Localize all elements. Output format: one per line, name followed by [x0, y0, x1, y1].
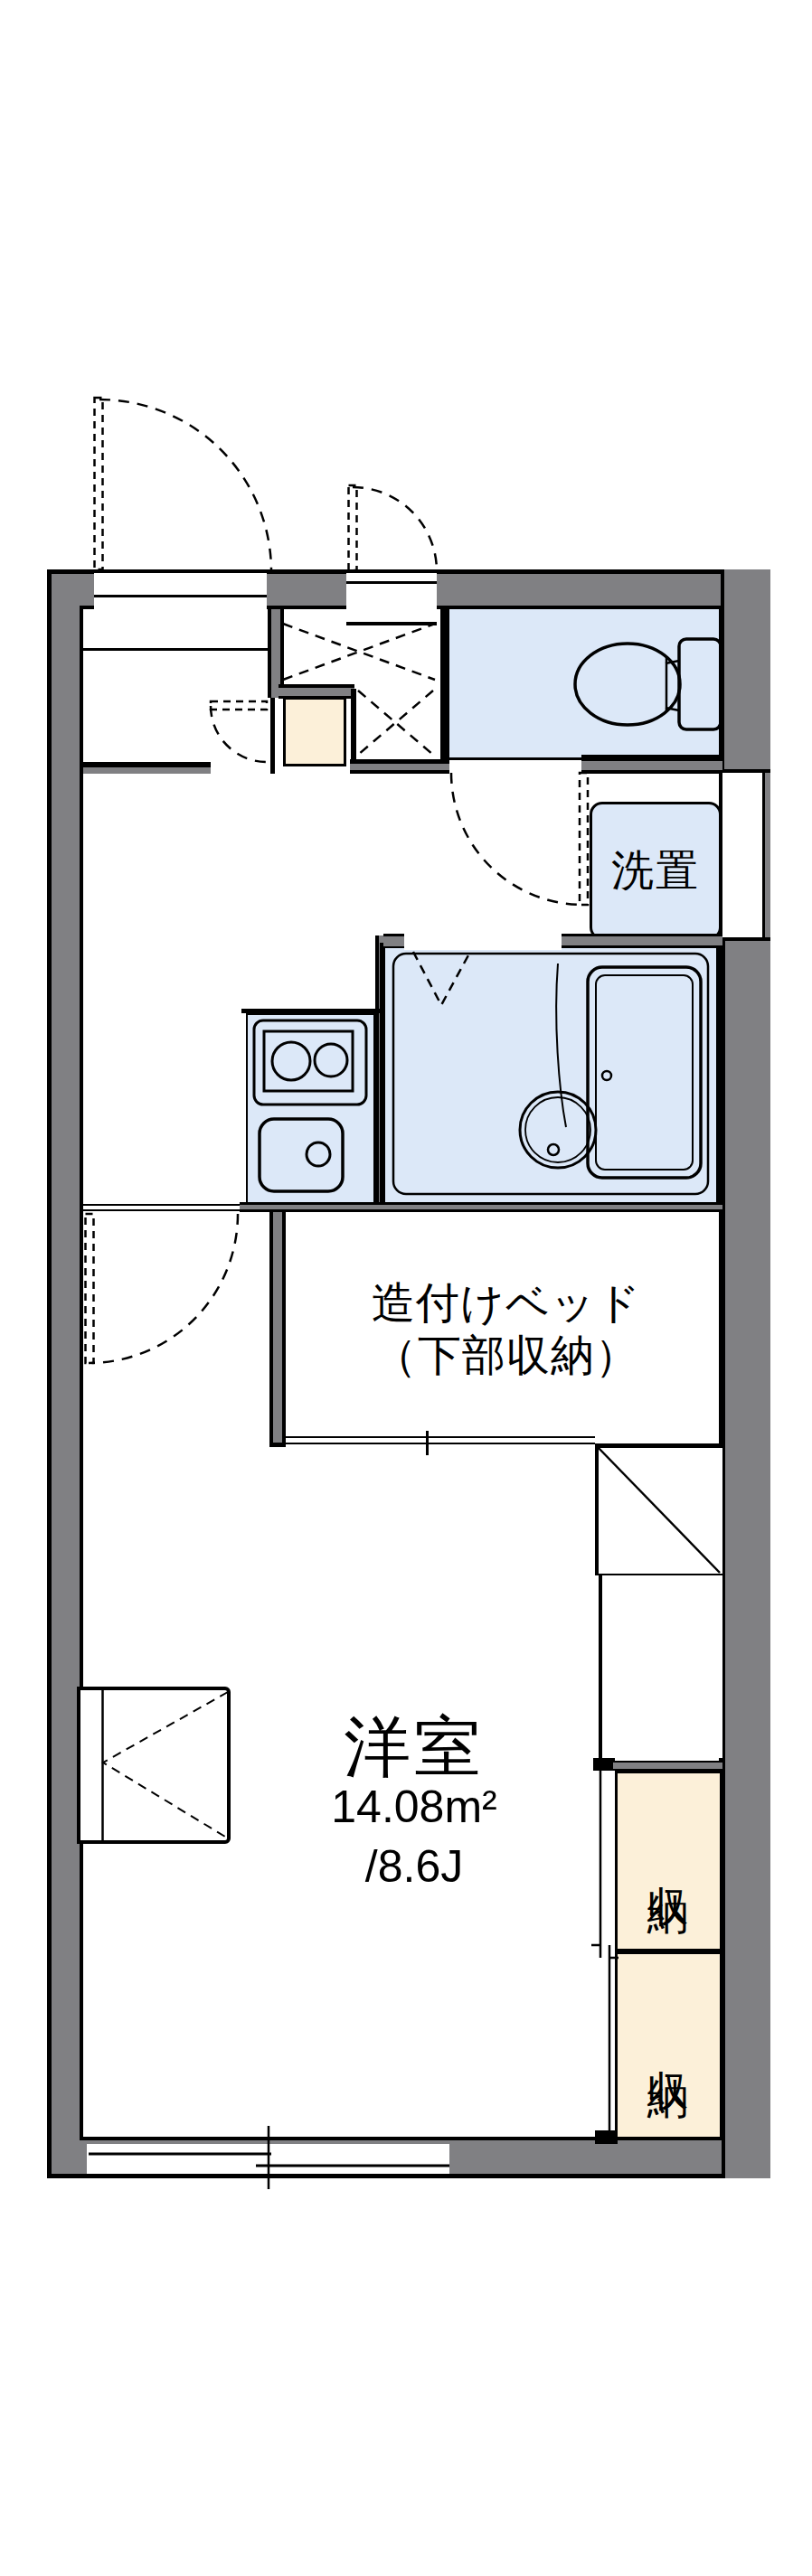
built-in-bed-label: 造付けベッド （下部収納）	[298, 1277, 714, 1382]
bay-window	[77, 1687, 231, 1844]
wall-right-toilet	[721, 569, 770, 773]
storage-lower: 収納	[615, 1951, 722, 2139]
wall-storage-notch-top	[593, 1758, 615, 1771]
wall-toilet-left	[440, 609, 449, 760]
wall-genkan-bottom-right	[350, 759, 449, 774]
wall-genkan-divider-thin	[270, 698, 275, 774]
wall-right-nook	[762, 773, 770, 937]
wall-right-lower	[722, 937, 770, 2178]
entrance-door-swing	[99, 400, 271, 571]
room-door-wall	[83, 1204, 240, 1211]
bed-label-line1: 造付けベッド	[298, 1277, 714, 1330]
storage-upper-label: 収納	[641, 1852, 697, 1870]
storage-lower-label: 収納	[641, 2036, 697, 2054]
bed-edge-tick	[426, 1431, 429, 1455]
wall-storage-top	[613, 1761, 722, 1771]
bed-front-edge	[286, 1436, 595, 1444]
room-area-label: 14.08m²	[233, 1781, 595, 1833]
floor-plan-page: { "floorplan": { "labels": { "bed_line1"…	[0, 0, 812, 2576]
wall-bath-top-left	[383, 934, 404, 946]
shoe-cabinet	[283, 697, 346, 766]
sub-door-leaf	[349, 485, 357, 570]
wall-bed-top	[240, 1202, 722, 1212]
room-name-label: 洋室	[233, 1703, 595, 1793]
washing-machine-area: 洗置	[590, 802, 722, 940]
wall-bed-left	[269, 1212, 286, 1447]
bed-label-line2: （下部収納）	[298, 1330, 714, 1382]
washer-label: 洗置	[611, 842, 700, 899]
wall-storage-notch-bottom	[595, 2130, 618, 2144]
toilet-door-threshold	[449, 757, 581, 760]
wall-genkan-column	[351, 689, 356, 761]
right-alcove	[599, 1575, 722, 1758]
kitchen-counter	[246, 1013, 375, 1204]
sub-door-step-line	[346, 581, 437, 584]
storage-upper: 収納	[615, 1771, 722, 1951]
room-tatami-label: /8.6J	[233, 1840, 595, 1893]
wall-genkan-bottom-left	[83, 762, 211, 774]
sub-door-swing	[353, 487, 437, 571]
refrigerator-space	[595, 1443, 722, 1575]
entrance-door-leaf	[95, 398, 103, 569]
bathroom	[380, 943, 722, 1208]
wall-toilet-bottom	[581, 755, 722, 774]
entrance-doorway	[94, 573, 267, 609]
toilet-room	[449, 609, 719, 757]
wall-bath-top-right	[562, 934, 722, 948]
washer-nook-floor	[722, 773, 762, 937]
bath-door-opening	[404, 942, 562, 950]
genkan-step-edge	[83, 648, 268, 651]
sliding-window	[87, 2144, 449, 2174]
entrance-step-line	[94, 595, 267, 597]
